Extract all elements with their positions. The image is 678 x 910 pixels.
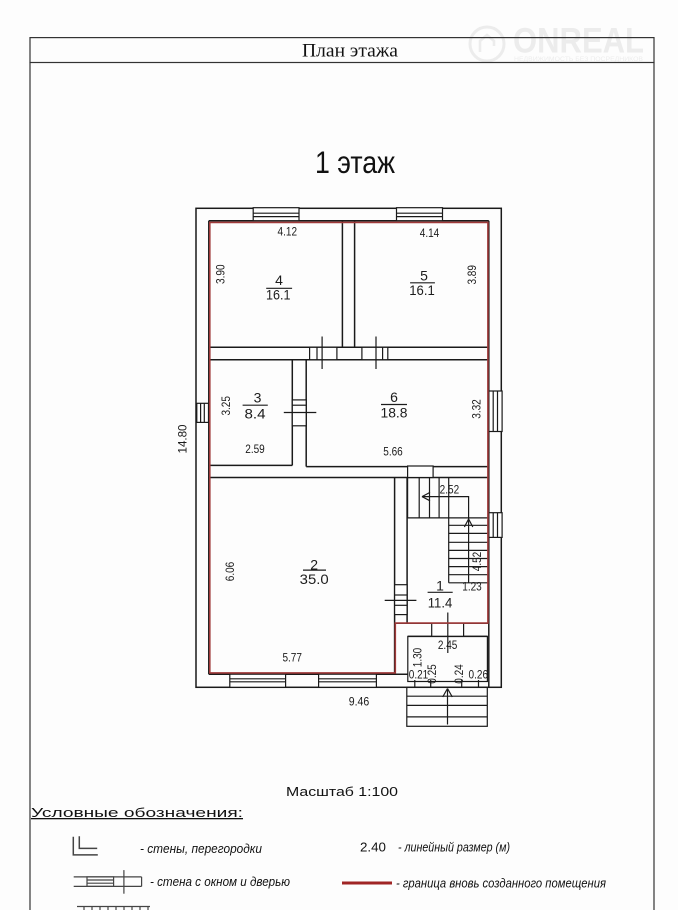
svg-text:План этажа: План этажа — [302, 41, 399, 62]
svg-text:6.06: 6.06 — [223, 561, 237, 581]
svg-text:2.45: 2.45 — [438, 638, 458, 652]
svg-text:35.0: 35.0 — [300, 571, 329, 587]
svg-text:3.89: 3.89 — [465, 265, 479, 285]
svg-text:ONREAL: ONREAL — [513, 22, 644, 61]
svg-text:4.52: 4.52 — [470, 551, 484, 571]
svg-text:- линейный размер (м): - линейный размер (м) — [398, 841, 510, 855]
svg-text:1.23: 1.23 — [462, 580, 482, 594]
svg-text:5.66: 5.66 — [383, 445, 403, 459]
svg-text:Условные обозначения:: Условные обозначения: — [31, 805, 243, 820]
svg-text:16.1: 16.1 — [409, 282, 435, 298]
svg-text:14.80: 14.80 — [176, 424, 190, 453]
svg-text:11.4: 11.4 — [428, 595, 453, 611]
svg-text:1: 1 — [436, 578, 444, 594]
svg-text:4.14: 4.14 — [420, 226, 440, 240]
svg-text:3.25: 3.25 — [219, 396, 233, 416]
svg-text:16.1: 16.1 — [266, 287, 291, 303]
svg-text:1 этаж: 1 этаж — [315, 144, 395, 180]
svg-text:1.30: 1.30 — [411, 647, 425, 667]
svg-text:0.24: 0.24 — [452, 664, 466, 684]
svg-text:0.25: 0.25 — [425, 664, 439, 684]
svg-text:- стены, перегородки: - стены, перегородки — [140, 842, 262, 856]
svg-text:8.4: 8.4 — [245, 406, 266, 422]
svg-text:9.46: 9.46 — [349, 695, 370, 709]
svg-text:Масштаб 1:100: Масштаб 1:100 — [286, 785, 398, 799]
svg-text:2.59: 2.59 — [245, 442, 265, 456]
svg-text:18.8: 18.8 — [381, 405, 408, 421]
svg-text:2.52: 2.52 — [440, 483, 460, 497]
svg-text:3.90: 3.90 — [214, 264, 228, 284]
svg-text:3.32: 3.32 — [470, 399, 484, 419]
svg-text:0.26: 0.26 — [469, 668, 489, 682]
svg-text:2.40: 2.40 — [360, 841, 386, 855]
svg-text:- граница вновь созданного пом: - граница вновь созданного помещения — [396, 877, 606, 891]
svg-text:3: 3 — [254, 390, 262, 406]
svg-text:- стена с окном и дверью: - стена с окном и дверью — [150, 875, 291, 889]
svg-text:4.12: 4.12 — [278, 225, 298, 239]
svg-text:5.77: 5.77 — [282, 650, 302, 664]
svg-text:6: 6 — [390, 389, 398, 405]
